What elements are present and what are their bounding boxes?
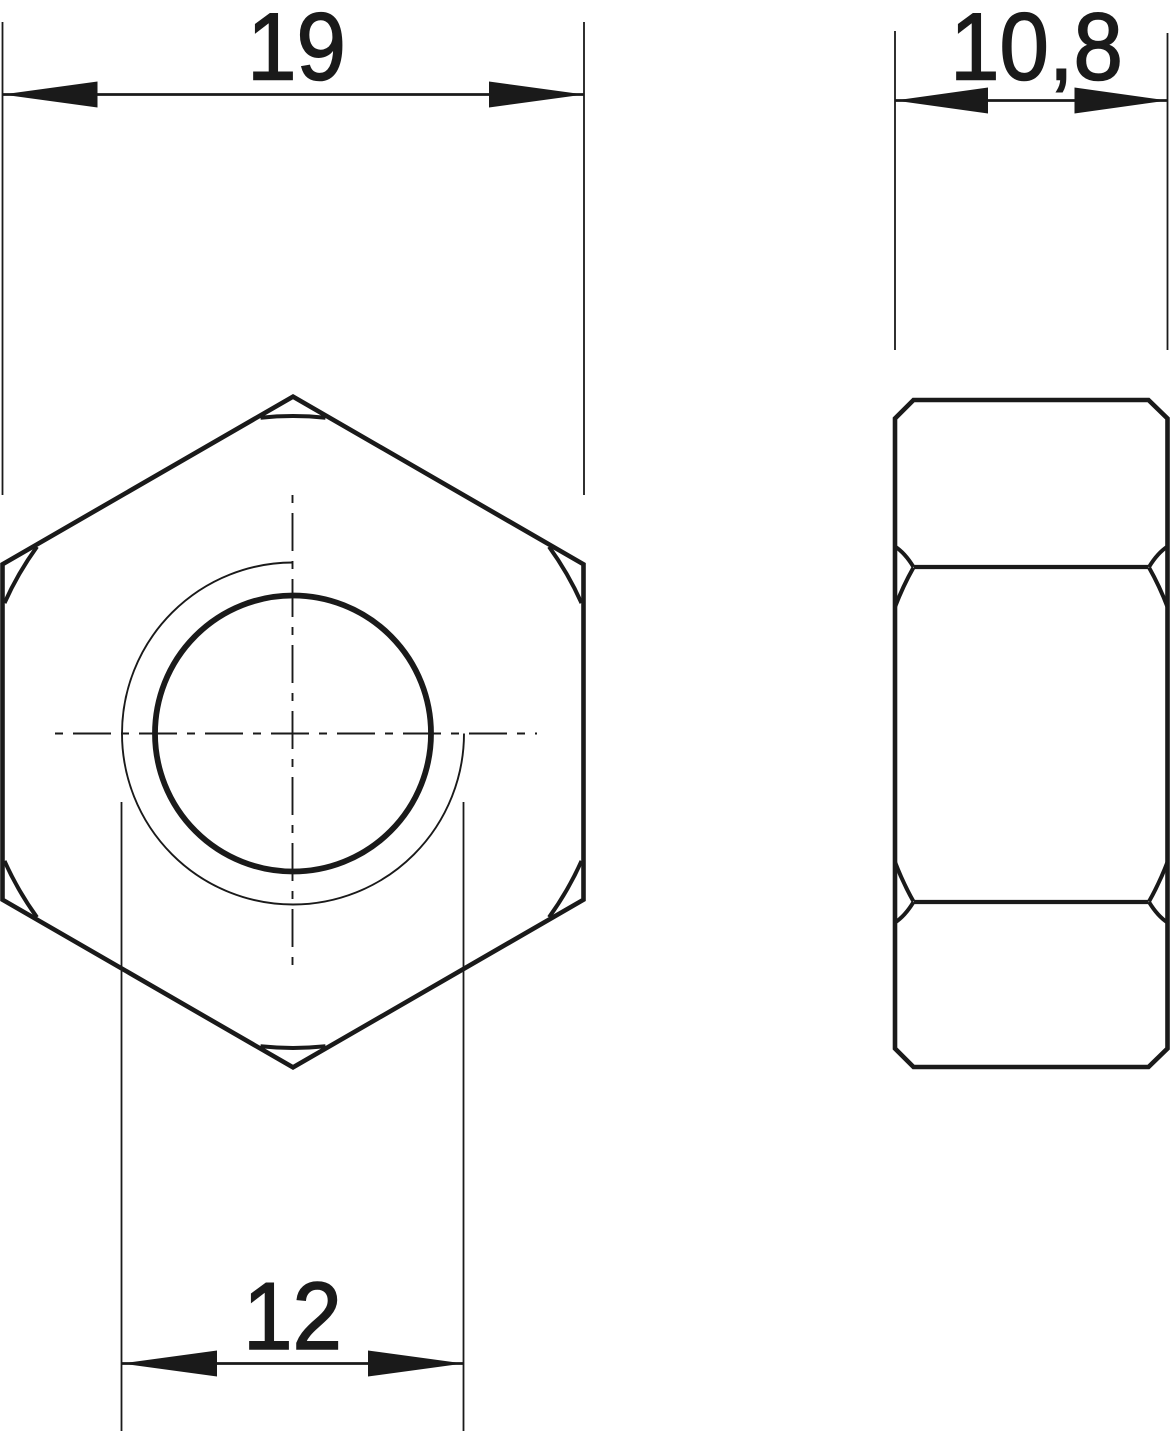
svg-text:12: 12	[243, 1263, 342, 1370]
svg-text:19: 19	[247, 0, 346, 100]
svg-text:10,8: 10,8	[950, 0, 1123, 100]
